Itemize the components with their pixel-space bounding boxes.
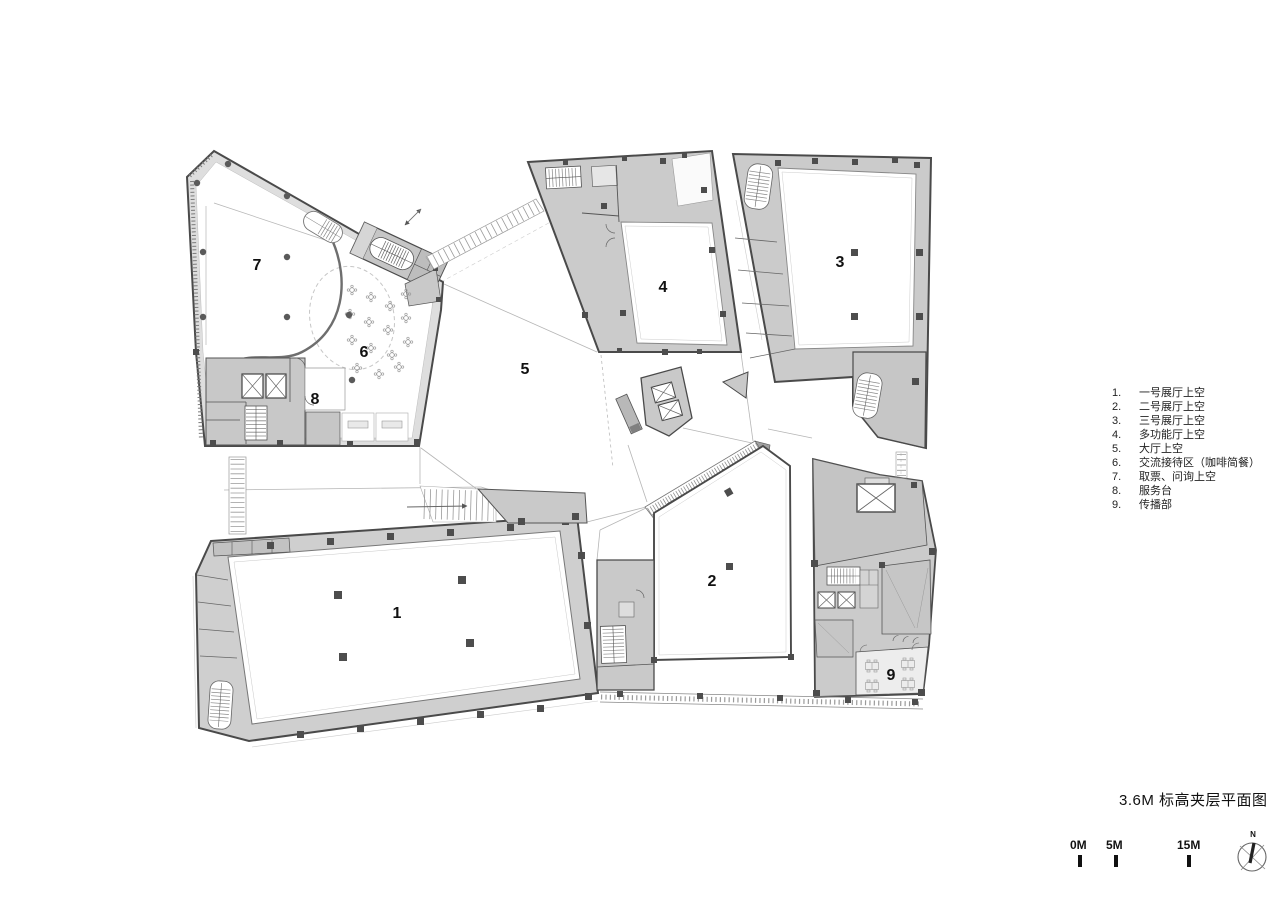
elevator: [242, 374, 263, 398]
legend-label: 二号展厅上空: [1139, 400, 1205, 414]
legend-label: 交流接待区（咖啡简餐）: [1139, 456, 1260, 470]
legend: 1.一号展厅上空 2.二号展厅上空 3.三号展厅上空 4.多功能厅上空 5.大厅…: [1112, 386, 1260, 512]
room-label-1: 1: [393, 605, 402, 622]
scale-tick-mark: [1078, 855, 1082, 867]
room-label-6: 6: [360, 344, 369, 361]
void-3: [778, 168, 916, 349]
legend-label: 多功能厅上空: [1139, 428, 1205, 442]
room-label-4: 4: [659, 279, 668, 296]
service-core: [206, 358, 305, 445]
legend-number: 5.: [1112, 442, 1139, 456]
block-office-9: [811, 459, 936, 697]
legend-item: 7.取票、问询上空: [1112, 470, 1260, 484]
legend-item: 6.交流接待区（咖啡简餐）: [1112, 456, 1260, 470]
scale-tick-mark: [1187, 855, 1191, 867]
scale-label: 5M: [1106, 838, 1123, 852]
legend-label: 一号展厅上空: [1139, 386, 1205, 400]
legend-item: 9.传播部: [1112, 498, 1260, 512]
plan-title: 3.6M 标高夹层平面图: [1119, 789, 1268, 810]
scale-label: 15M: [1177, 838, 1200, 852]
legend-label: 三号展厅上空: [1139, 414, 1205, 428]
room-label-5: 5: [521, 361, 530, 378]
block-multifunction-hall-4: [528, 151, 741, 355]
elevator: [838, 592, 855, 608]
room-label-2: 2: [708, 573, 717, 590]
void-4: [621, 222, 727, 345]
legend-number: 3.: [1112, 414, 1139, 428]
floor-plan-drawing: 7 6 8 4 3 5 1 2 9: [0, 0, 1280, 904]
service-core: [597, 560, 654, 690]
stair: [207, 680, 233, 729]
elevator: [818, 592, 835, 608]
scale-tick-5m: 5M: [1106, 838, 1123, 867]
legend-item: 2.二号展厅上空: [1112, 400, 1260, 414]
legend-number: 9.: [1112, 498, 1139, 512]
legend-item: 3.三号展厅上空: [1112, 414, 1260, 428]
void-2: [654, 446, 791, 660]
room-label-7: 7: [253, 257, 262, 274]
drawing-sheet: 7 6 8 4 3 5 1 2 9 1.一号展厅上空 2.二号展厅上空 3.三号…: [0, 0, 1280, 904]
connector-stair: [896, 452, 907, 478]
stair: [827, 567, 860, 585]
legend-item: 1.一号展厅上空: [1112, 386, 1260, 400]
block-exhibition-hall-1: [196, 516, 598, 741]
stair: [600, 626, 626, 664]
scale-tick-15m: 15M: [1177, 838, 1200, 867]
stair: [545, 166, 581, 189]
scale-tick-0m: 0M: [1070, 838, 1087, 867]
scale-tick-mark: [1114, 855, 1118, 867]
legend-item: 5.大厅上空: [1112, 442, 1260, 456]
room-label-9: 9: [887, 667, 896, 684]
triangular-planter: [723, 372, 748, 398]
legend-number: 8.: [1112, 484, 1139, 498]
legend-number: 7.: [1112, 470, 1139, 484]
north-label: N: [1250, 830, 1256, 839]
legend-label: 大厅上空: [1139, 442, 1183, 456]
ramp-room: [882, 560, 931, 634]
room-label-8: 8: [311, 391, 320, 408]
desk: [382, 421, 402, 428]
stair: [245, 406, 267, 440]
legend-number: 4.: [1112, 428, 1139, 442]
legend-label: 服务台: [1139, 484, 1172, 498]
legend-label: 传播部: [1139, 498, 1172, 512]
room-label-3: 3: [836, 254, 845, 271]
legend-item: 4.多功能厅上空: [1112, 428, 1260, 442]
north-arrow-icon: N: [1230, 828, 1276, 878]
legend-number: 6.: [1112, 456, 1139, 470]
freestanding-wall: [616, 394, 642, 434]
scale-label: 0M: [1070, 838, 1087, 852]
legend-item: 8.服务台: [1112, 484, 1260, 498]
elevator: [266, 374, 286, 398]
exterior-stair: [229, 457, 246, 534]
legend-label: 取票、问询上空: [1139, 470, 1216, 484]
desk: [348, 421, 368, 428]
hall-stair-landing: [407, 486, 587, 525]
legend-number: 2.: [1112, 400, 1139, 414]
north-needle: [1250, 843, 1254, 863]
block-exhibition-hall-3: [733, 154, 931, 448]
scale-bar: 0M 5M 15M: [1060, 838, 1220, 874]
elevator-island: [616, 367, 748, 436]
legend-number: 1.: [1112, 386, 1139, 400]
